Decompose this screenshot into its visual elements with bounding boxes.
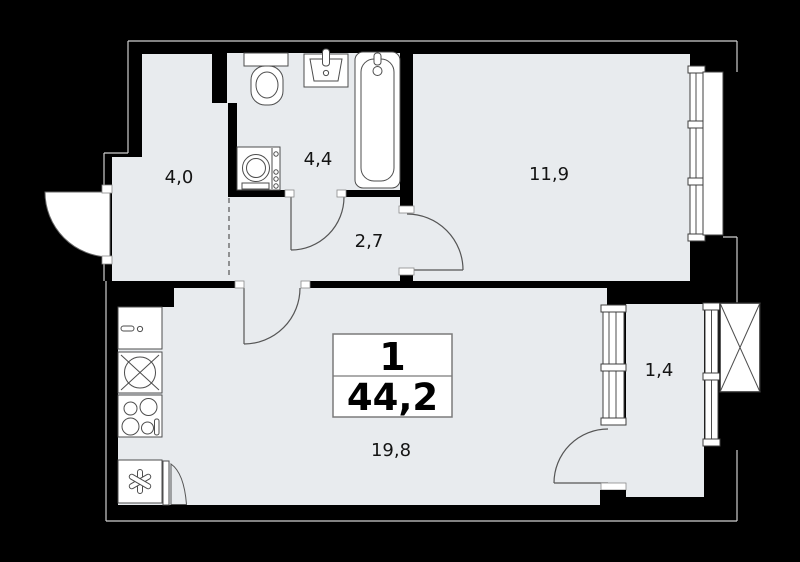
- doorway-bathroom: [294, 190, 337, 197]
- balcony-partition-window: [601, 305, 626, 425]
- ventilation-shaft: [720, 303, 760, 392]
- window-sill: [703, 72, 723, 235]
- label-bathroom-area: 4,4: [304, 149, 333, 170]
- hob-icon: [118, 352, 162, 393]
- doorway-bedroom: [400, 213, 413, 268]
- label-corridor-area: 2,7: [355, 231, 384, 252]
- bedroom-window: [688, 66, 723, 241]
- room-balcony: [626, 304, 704, 497]
- label-balcony-area: 1,4: [645, 360, 674, 381]
- unit-total-area: 44,2: [347, 376, 438, 419]
- label-bedroom-area: 11,9: [529, 164, 569, 185]
- washbasin-icon: [304, 49, 348, 87]
- refrigerator-icon: [118, 460, 162, 503]
- unit-rooms-count: 1: [379, 335, 405, 379]
- label-living-area: 19,8: [371, 440, 411, 461]
- balcony-side-window: [703, 303, 720, 446]
- stove-icon: [118, 395, 162, 437]
- unit-info-card: 1 44,2: [333, 334, 452, 419]
- kitchen-sink-icon: [118, 307, 162, 349]
- bathtub-icon: [355, 52, 400, 188]
- label-hallway-area: 4,0: [165, 167, 194, 188]
- floor-plan: 4,0 4,4 2,7 11,9 19,8 1,4 1 44,2: [0, 0, 800, 562]
- washing-machine-icon: [237, 147, 280, 190]
- floor-plan-canvas: 4,0 4,4 2,7 11,9 19,8 1,4 1 44,2: [0, 0, 800, 562]
- doorway-balcony: [602, 425, 626, 483]
- doorway-living: [244, 281, 301, 288]
